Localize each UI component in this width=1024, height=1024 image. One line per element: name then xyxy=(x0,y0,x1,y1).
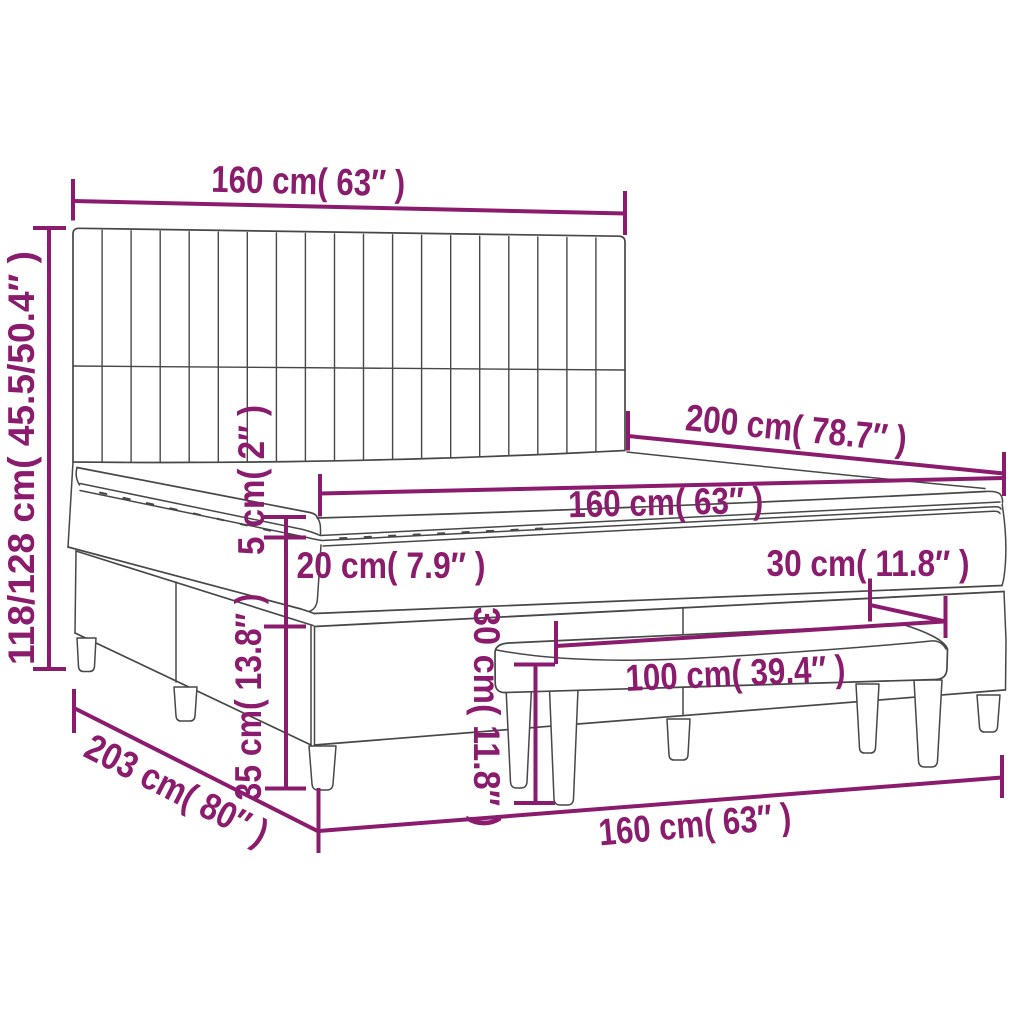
svg-text:160 cm( 63″ ): 160 cm( 63″ ) xyxy=(568,479,764,525)
svg-text:118/128 cm( 45.5/50.4″ ): 118/128 cm( 45.5/50.4″ ) xyxy=(0,251,42,665)
svg-text:35 cm( 13.8″ ): 35 cm( 13.8″ ) xyxy=(227,594,269,801)
svg-text:20 cm( 7.9″ ): 20 cm( 7.9″ ) xyxy=(297,544,486,586)
svg-text:160 cm( 63″ ): 160 cm( 63″ ) xyxy=(597,795,793,854)
svg-text:100 cm( 39.4″ ): 100 cm( 39.4″ ) xyxy=(625,647,847,699)
svg-text:5 cm( 2″ ): 5 cm( 2″ ) xyxy=(230,405,272,555)
svg-text:160 cm( 63″ ): 160 cm( 63″ ) xyxy=(211,158,406,204)
svg-text:200 cm( 78.7″ ): 200 cm( 78.7″ ) xyxy=(684,396,909,460)
svg-text:30 cm( 11.8″ ): 30 cm( 11.8″ ) xyxy=(466,607,508,827)
svg-text:30 cm( 11.8″ ): 30 cm( 11.8″ ) xyxy=(767,542,970,584)
